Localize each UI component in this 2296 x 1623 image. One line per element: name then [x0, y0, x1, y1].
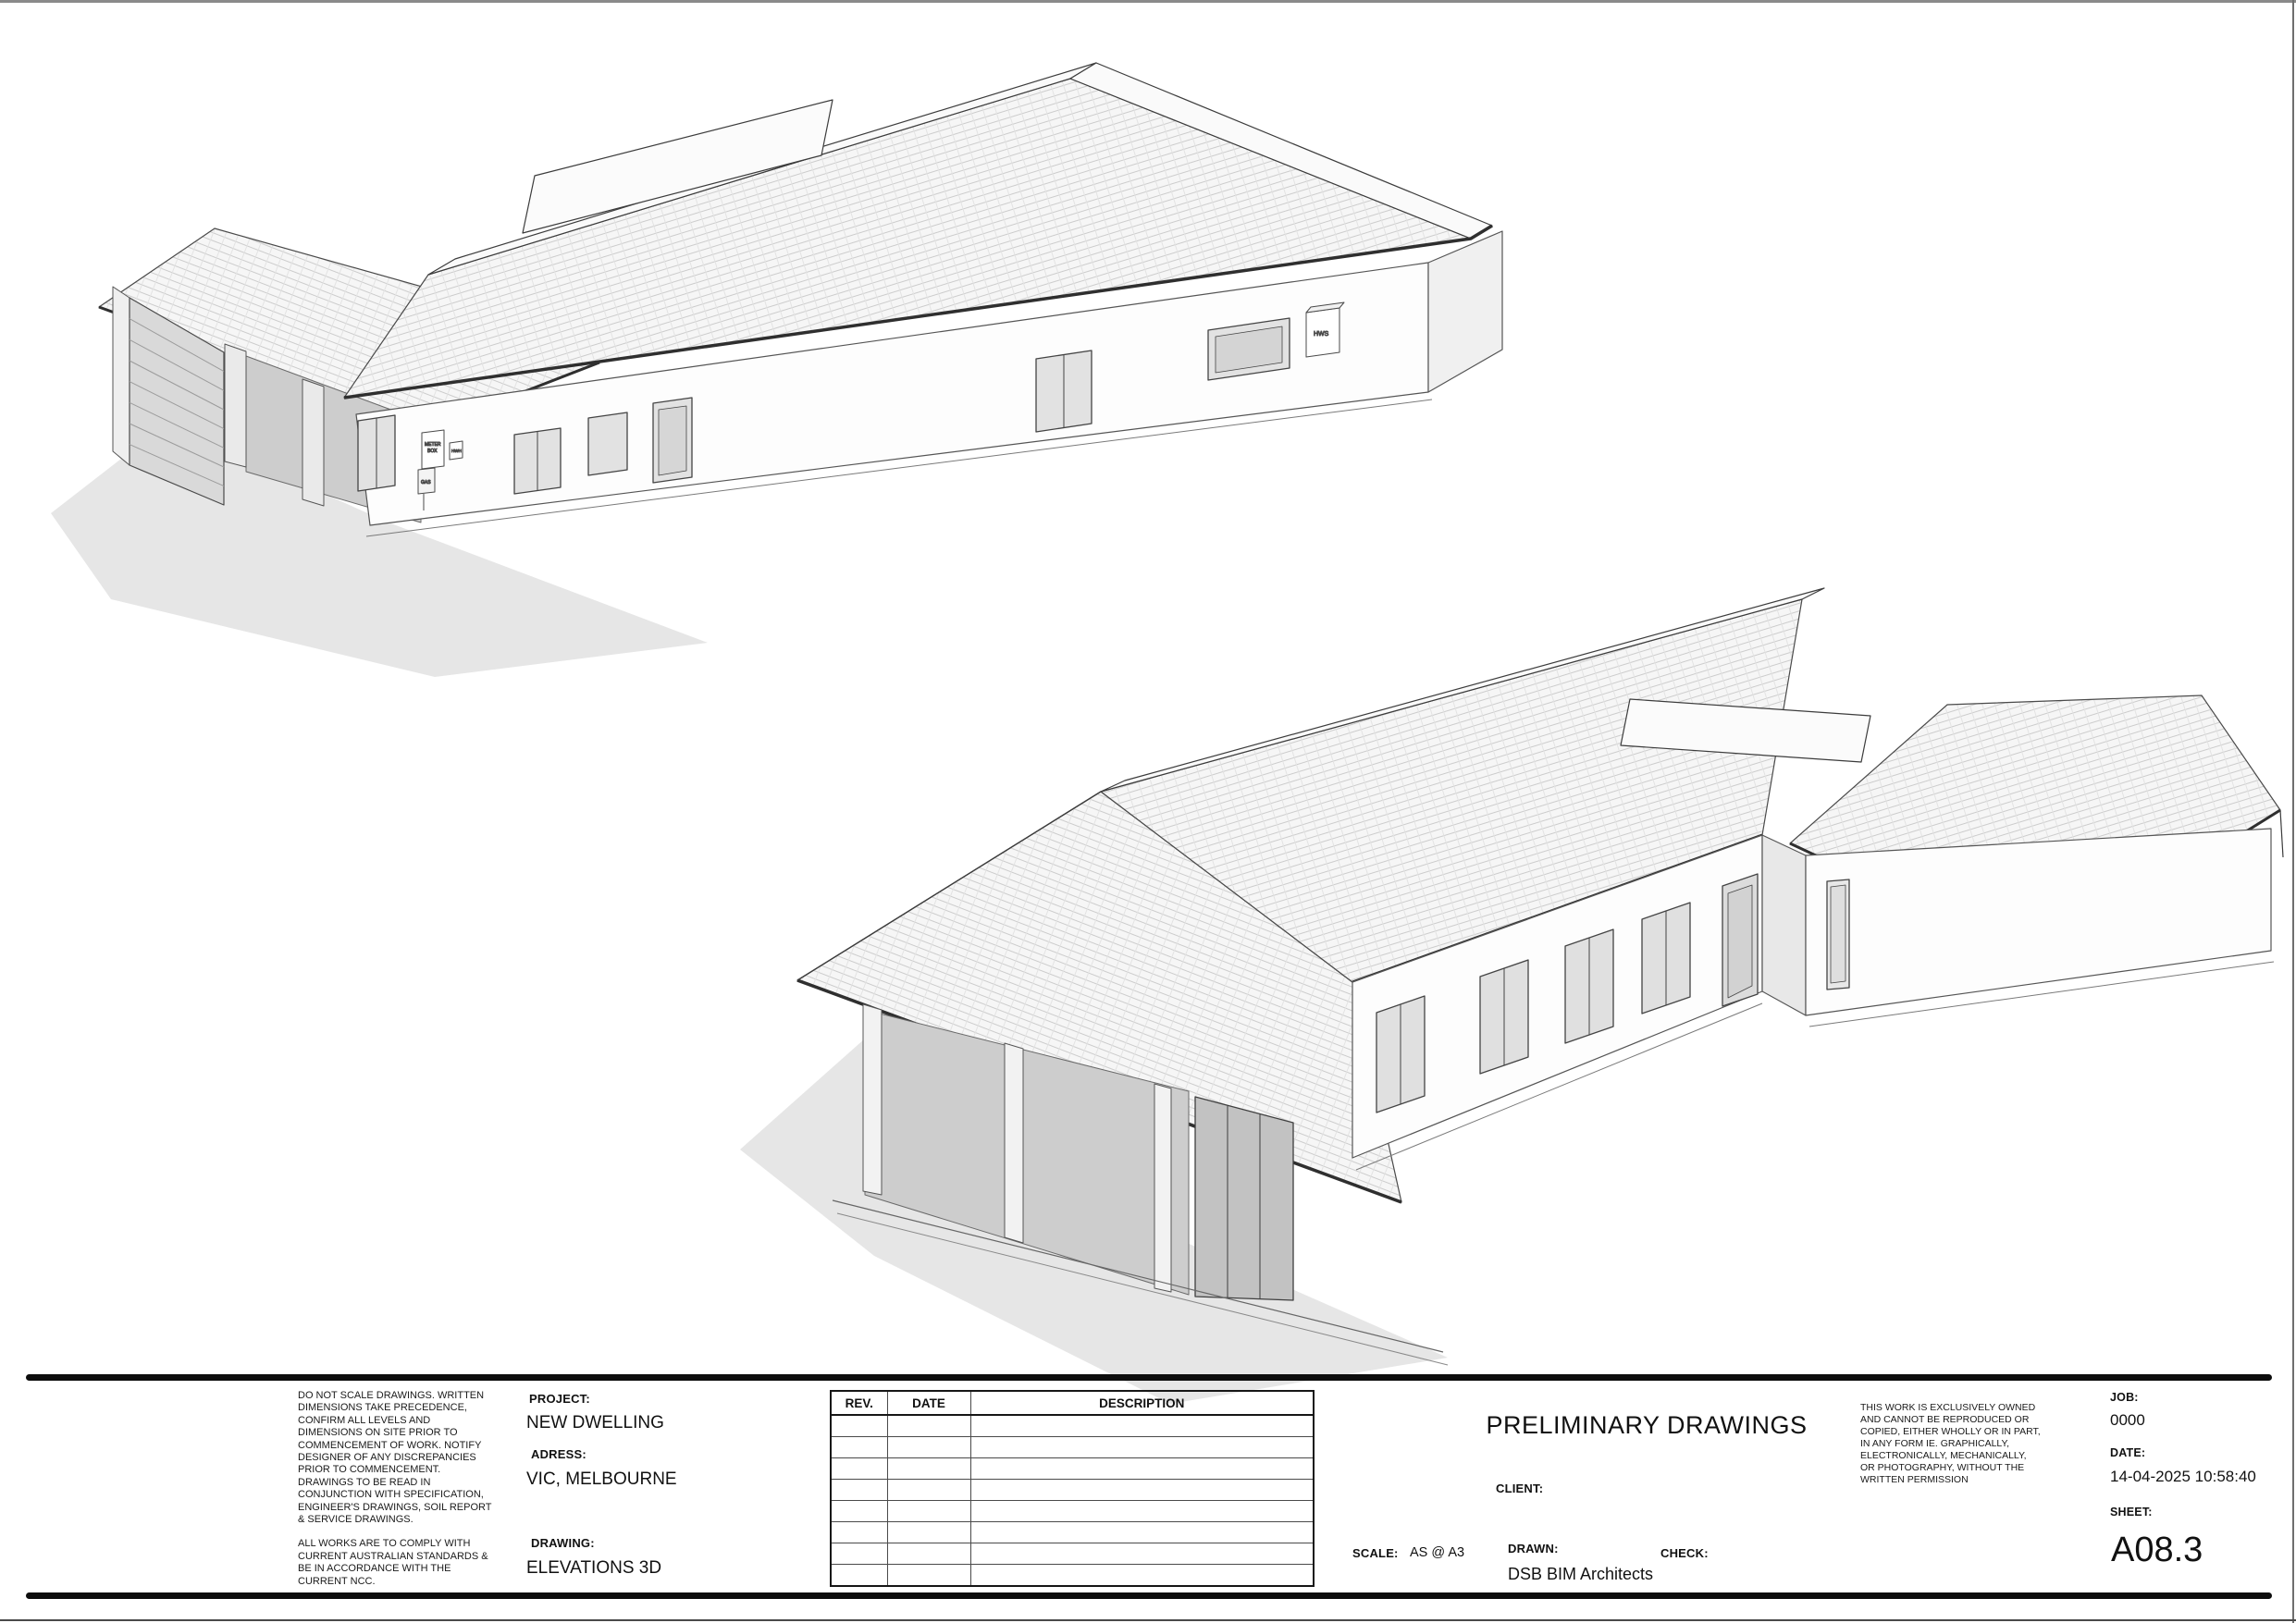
- sheet-label: SHEET:: [2110, 1506, 2153, 1518]
- wing-wall: [1806, 829, 2271, 1015]
- wing-corner: [2280, 810, 2283, 857]
- revision-row: [831, 1437, 1314, 1458]
- address-label: ADRESS:: [531, 1447, 586, 1461]
- meter-box-label-2: BOX: [427, 449, 438, 454]
- project-label: PROJECT:: [529, 1392, 590, 1406]
- veranda-post: [1005, 1043, 1023, 1243]
- revision-col-date: DATE: [887, 1391, 970, 1415]
- check-label: CHECK:: [1660, 1546, 1709, 1560]
- porch-post: [225, 344, 246, 467]
- drawing-value: ELEVATIONS 3D: [526, 1558, 661, 1579]
- drawn-value: DSB BIM Architects: [1508, 1565, 1653, 1584]
- house-view-1: HWS METER BOX HWH GAS: [51, 63, 1502, 677]
- revision-row: [831, 1543, 1314, 1565]
- revision-header-row: REV. DATE DESCRIPTION: [831, 1391, 1314, 1415]
- revision-row: [831, 1522, 1314, 1543]
- revision-row: [831, 1565, 1314, 1587]
- entry-door-inner: [1728, 885, 1752, 998]
- gas-label: GAS: [421, 480, 431, 486]
- disclaimer-paragraph-1: DO NOT SCALE DRAWINGS. WRITTEN DIMENSION…: [298, 1390, 494, 1526]
- wing-door-inner: [1831, 885, 1845, 983]
- revision-row: [831, 1480, 1314, 1501]
- veranda-post: [863, 1004, 882, 1195]
- sheet-number: A08.3: [2111, 1531, 2203, 1570]
- drawing-sheet: HWS METER BOX HWH GAS: [0, 0, 2296, 1623]
- garage-side-wall: [113, 287, 130, 465]
- porch-post: [302, 379, 324, 506]
- page-edge-bottom: [0, 1619, 2296, 1621]
- date-label: DATE:: [2110, 1446, 2145, 1459]
- scale-label: SCALE:: [1352, 1546, 1399, 1560]
- disclaimer-notes: DO NOT SCALE DRAWINGS. WRITTEN DIMENSION…: [298, 1390, 494, 1600]
- end-wall: [1428, 231, 1502, 392]
- address-value: VIC, MELBOURNE: [526, 1469, 677, 1490]
- project-value: NEW DWELLING: [526, 1413, 664, 1433]
- revision-row: [831, 1458, 1314, 1480]
- revision-table: REV. DATE DESCRIPTION: [830, 1390, 1315, 1587]
- disclaimer-paragraph-2: ALL WORKS ARE TO COMPLY WITH CURRENT AUS…: [298, 1538, 494, 1588]
- status-title: PRELIMINARY DRAWINGS: [1438, 1411, 1855, 1440]
- window: [588, 412, 627, 475]
- drawing-label: DRAWING:: [531, 1536, 595, 1550]
- client-label: CLIENT:: [1496, 1482, 1543, 1495]
- copyright-note: THIS WORK IS EXCLUSIVELY OWNED AND CANNO…: [1860, 1402, 2042, 1486]
- meter-box-label-1: METER: [425, 442, 441, 448]
- hws-label: HWS: [1314, 331, 1329, 338]
- job-label: JOB:: [2110, 1391, 2139, 1404]
- scale-value: AS @ A3: [1410, 1545, 1464, 1560]
- wing-return-wall: [1762, 835, 1806, 1015]
- revision-col-rev: REV.: [831, 1391, 887, 1415]
- revision-col-description: DESCRIPTION: [970, 1391, 1314, 1415]
- house-view-2: [740, 588, 2283, 1404]
- drawn-label: DRAWN:: [1508, 1542, 1559, 1555]
- window-glazed-door-inner: [659, 406, 686, 475]
- job-value: 0000: [2110, 1411, 2145, 1430]
- page-edge-top: [0, 0, 2296, 3]
- titleblock-top-rule: [26, 1374, 2272, 1381]
- veranda-glass-doors: [1195, 1097, 1293, 1300]
- page-edge-right: [2292, 0, 2294, 1623]
- hwh-label: HWH: [451, 449, 462, 453]
- date-value: 14-04-2025 10:58:40: [2110, 1468, 2256, 1486]
- veranda-post: [1154, 1084, 1171, 1292]
- revision-row: [831, 1415, 1314, 1437]
- revision-row: [831, 1501, 1314, 1522]
